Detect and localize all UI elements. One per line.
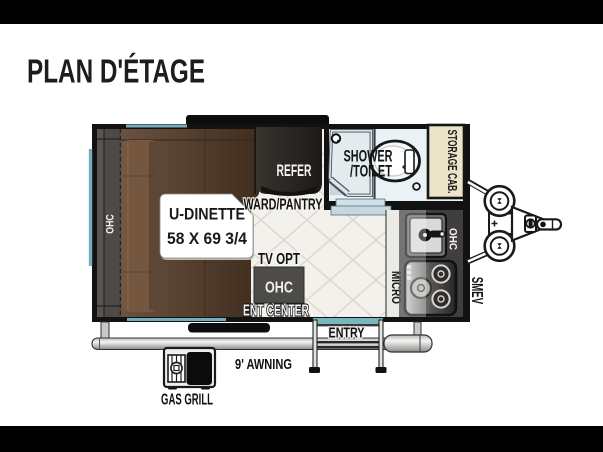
svg-text:SMEV: SMEV bbox=[468, 277, 486, 304]
svg-text:OHC: OHC bbox=[446, 228, 458, 250]
svg-text:PLAN D'ÉTAGE: PLAN D'ÉTAGE bbox=[27, 52, 205, 91]
svg-text:GAS GRILL: GAS GRILL bbox=[161, 390, 213, 408]
svg-text:ENT CENTER: ENT CENTER bbox=[243, 301, 309, 319]
svg-text:TV OPT: TV OPT bbox=[258, 250, 300, 267]
svg-text:REFER: REFER bbox=[277, 160, 312, 179]
svg-text:STORAGE CAB.: STORAGE CAB. bbox=[444, 130, 458, 194]
svg-text:WARD/PANTRY: WARD/PANTRY bbox=[244, 195, 323, 213]
svg-text:58 X 69 3/4: 58 X 69 3/4 bbox=[167, 229, 247, 248]
svg-text:/TOILET: /TOILET bbox=[350, 161, 392, 180]
svg-text:OHC: OHC bbox=[105, 214, 117, 234]
svg-text:OHC: OHC bbox=[265, 279, 293, 297]
svg-text:9' AWNING: 9' AWNING bbox=[235, 356, 292, 373]
svg-text:ENTRY: ENTRY bbox=[329, 324, 365, 341]
svg-text:U-DINETTE: U-DINETTE bbox=[169, 205, 245, 223]
